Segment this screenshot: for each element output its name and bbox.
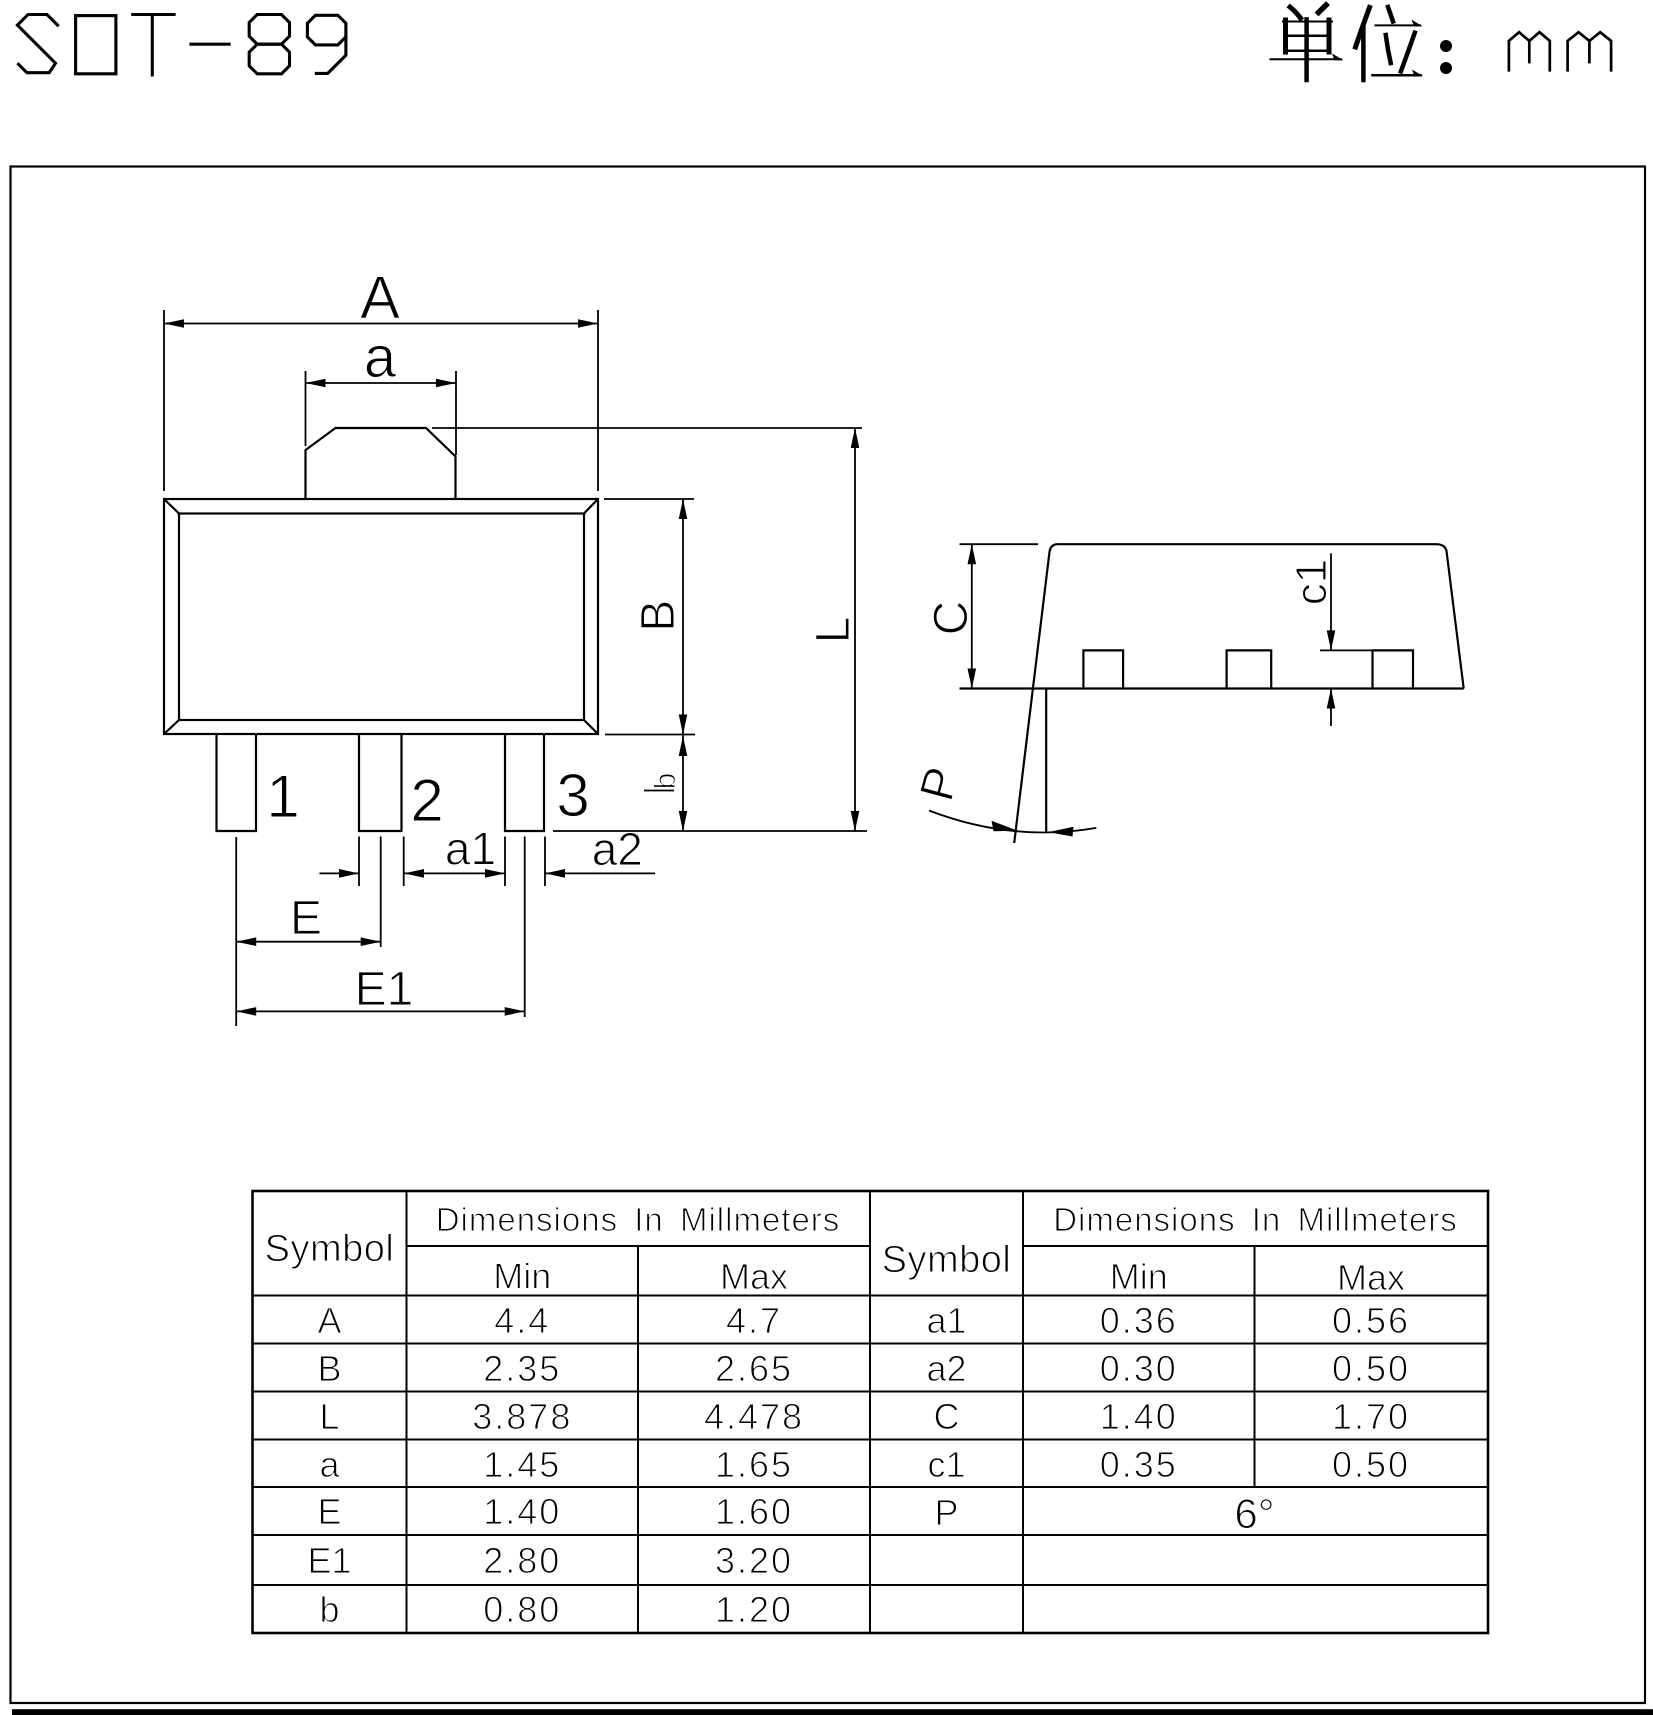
svg-text:1.40: 1.40 xyxy=(1100,1396,1178,1437)
svg-text:a: a xyxy=(319,1444,340,1485)
svg-text:0.56: 0.56 xyxy=(1332,1300,1410,1341)
svg-text:2: 2 xyxy=(410,767,443,834)
svg-text:C: C xyxy=(925,601,978,636)
svg-text:4.4: 4.4 xyxy=(494,1300,550,1341)
svg-text:L: L xyxy=(319,1396,339,1437)
svg-text:0.36: 0.36 xyxy=(1100,1300,1178,1341)
svg-text:1.65: 1.65 xyxy=(715,1444,793,1485)
svg-text:2.80: 2.80 xyxy=(483,1540,561,1581)
svg-text:Symbol: Symbol xyxy=(882,1239,1012,1281)
svg-text:a1: a1 xyxy=(926,1300,966,1341)
svg-text:Max: Max xyxy=(1337,1257,1405,1298)
svg-text:1: 1 xyxy=(266,763,299,830)
svg-text:L: L xyxy=(807,617,860,644)
svg-text:0.50: 0.50 xyxy=(1332,1444,1410,1485)
svg-text:3.878: 3.878 xyxy=(472,1396,572,1437)
svg-text:2.35: 2.35 xyxy=(483,1348,561,1389)
svg-text:4.478: 4.478 xyxy=(704,1396,804,1437)
svg-text:a2: a2 xyxy=(592,823,643,875)
svg-text:0.50: 0.50 xyxy=(1332,1348,1410,1389)
svg-text:A: A xyxy=(360,264,400,331)
svg-text:c1: c1 xyxy=(1287,559,1336,605)
svg-text:E1: E1 xyxy=(355,963,414,1016)
svg-text:a1: a1 xyxy=(445,823,496,875)
svg-text:1.20: 1.20 xyxy=(715,1589,793,1630)
svg-text:B: B xyxy=(632,600,685,632)
svg-text:C: C xyxy=(934,1396,960,1437)
svg-text:Max: Max xyxy=(720,1256,788,1297)
svg-text:Min: Min xyxy=(1110,1256,1168,1297)
svg-text:a2: a2 xyxy=(926,1348,966,1389)
svg-text:Symbol: Symbol xyxy=(265,1228,395,1270)
svg-text:0.80: 0.80 xyxy=(483,1589,561,1630)
svg-text:b: b xyxy=(649,773,682,790)
svg-text:E1: E1 xyxy=(307,1540,351,1581)
svg-text:0.30: 0.30 xyxy=(1100,1348,1178,1389)
svg-text:b: b xyxy=(319,1589,339,1630)
svg-text:c1: c1 xyxy=(927,1444,965,1485)
svg-text:3: 3 xyxy=(556,762,589,829)
svg-text:1.70: 1.70 xyxy=(1332,1396,1410,1437)
svg-text:0.35: 0.35 xyxy=(1100,1444,1178,1485)
svg-text:4.7: 4.7 xyxy=(726,1300,782,1341)
svg-text:3.20: 3.20 xyxy=(715,1540,793,1581)
svg-text:B: B xyxy=(317,1348,341,1389)
svg-text:A: A xyxy=(317,1300,341,1341)
svg-text:E: E xyxy=(317,1491,341,1532)
svg-text:Dimensions In Millmeters: Dimensions In Millmeters xyxy=(436,1201,841,1238)
svg-text:a: a xyxy=(364,325,397,390)
svg-text:P: P xyxy=(934,1492,958,1533)
svg-text:1.45: 1.45 xyxy=(483,1444,561,1485)
svg-text:6°: 6° xyxy=(1234,1490,1274,1537)
svg-text:E: E xyxy=(290,892,322,945)
svg-text:1.60: 1.60 xyxy=(715,1491,793,1532)
svg-text:Dimensions In Millmeters: Dimensions In Millmeters xyxy=(1053,1201,1458,1238)
svg-text:2.65: 2.65 xyxy=(715,1348,793,1389)
svg-text:1.40: 1.40 xyxy=(483,1491,561,1532)
svg-text:Min: Min xyxy=(493,1256,551,1297)
